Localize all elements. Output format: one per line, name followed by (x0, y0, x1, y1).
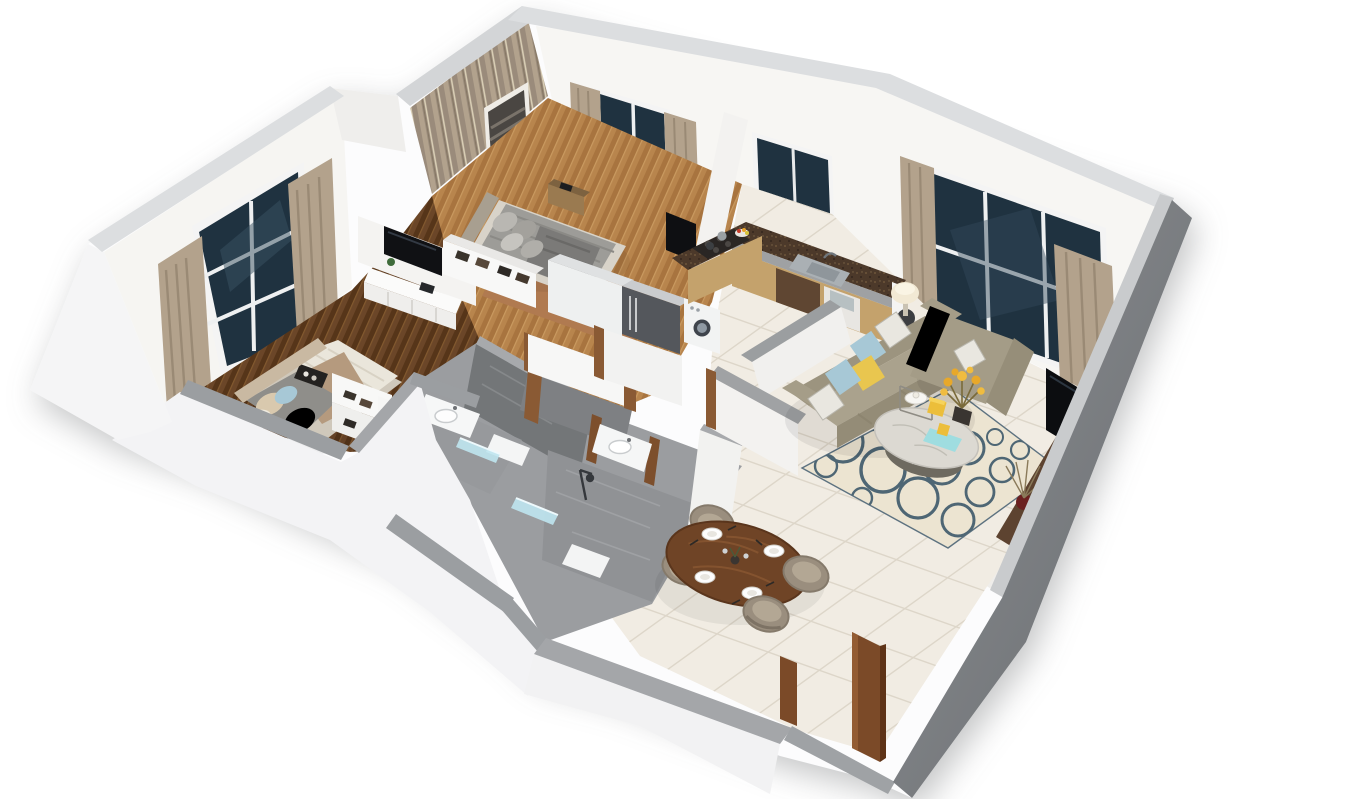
door-frame (780, 656, 797, 726)
pot (717, 231, 726, 240)
plant-on-sideboard (387, 258, 395, 266)
pan (706, 242, 714, 250)
floorplan-svg: 3D isometric apartment floor plan render… (0, 0, 1345, 799)
floorplan-render-canvas: 3D isometric apartment floor plan render… (0, 0, 1345, 799)
